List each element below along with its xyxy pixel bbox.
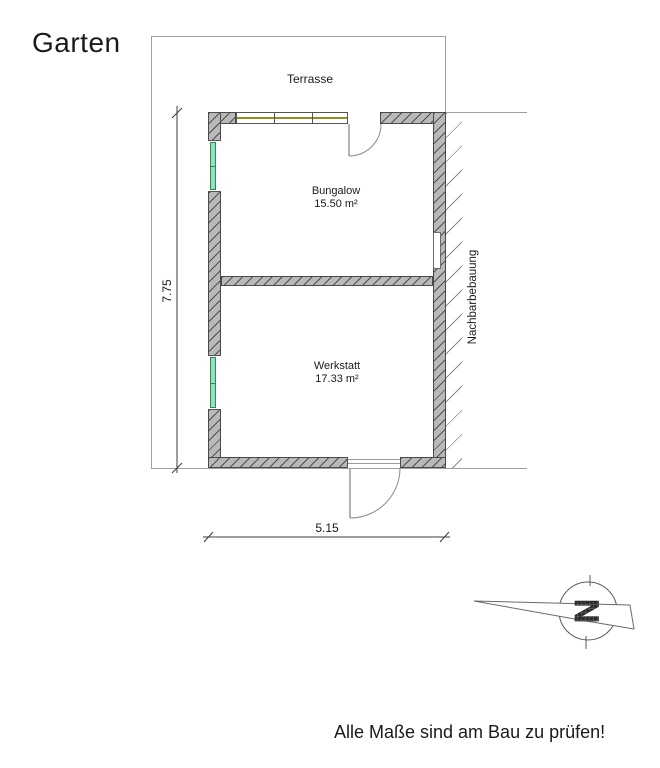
- terrace-window-divider: [274, 113, 275, 123]
- wall-middle-partition: [221, 276, 433, 286]
- north-arrow-icon: N: [474, 575, 634, 649]
- wall-bottom-left: [208, 457, 348, 468]
- window-tick: [210, 166, 216, 167]
- dim-tick: [440, 532, 449, 542]
- neighbour-building-hatch: [446, 113, 462, 468]
- werkstatt-side-window: [208, 355, 221, 410]
- boundary-ground-line: [151, 468, 527, 469]
- room-label-bungalow: Bungalow 15.50 m²: [286, 185, 386, 211]
- compass-circle: [559, 582, 617, 640]
- window-tick: [210, 383, 216, 384]
- door-threshold-line: [348, 459, 400, 460]
- compass-needle: [474, 601, 634, 629]
- nachbarbebauung-label: Nachbarbebauung: [467, 250, 479, 345]
- terrace-window-band: [236, 112, 348, 124]
- room-area: 15.50 m²: [286, 198, 386, 211]
- room-name: Werkstatt: [287, 360, 387, 373]
- boundary-left-line: [151, 36, 152, 468]
- room-area: 17.33 m²: [287, 373, 387, 386]
- terrace-window-divider: [312, 113, 313, 123]
- dim-tick: [204, 532, 213, 542]
- right-wall-recess: [433, 232, 441, 269]
- bungalow-door-swing-arc: [349, 124, 381, 156]
- door-threshold-line: [348, 463, 400, 464]
- dim-tick: [172, 108, 182, 118]
- boundary-top-line: [151, 36, 446, 37]
- floorplan-canvas: N Garten Terrasse Bungalow 15.50 m² Werk…: [0, 0, 660, 768]
- wall-right: [433, 112, 446, 468]
- terrace-window-glazing: [237, 117, 347, 119]
- footer-note: Alle Maße sind am Bau zu prüfen!: [334, 722, 605, 743]
- dim-height-label: 7.75: [160, 279, 174, 302]
- boundary-right-line: [445, 36, 446, 113]
- terrasse-label: Terrasse: [270, 72, 350, 86]
- garten-label: Garten: [32, 27, 121, 59]
- bungalow-side-window: [208, 140, 221, 192]
- dim-width-label: 5.15: [307, 521, 347, 535]
- wall-bottom-right: [400, 457, 446, 468]
- compass-north-letter: N: [567, 599, 605, 624]
- room-label-werkstatt: Werkstatt 17.33 m²: [287, 360, 387, 386]
- werkstatt-door-opening: [348, 457, 400, 468]
- bungalow-door-opening: [349, 112, 380, 124]
- werkstatt-door-swing-arc: [350, 468, 400, 518]
- room-name: Bungalow: [286, 185, 386, 198]
